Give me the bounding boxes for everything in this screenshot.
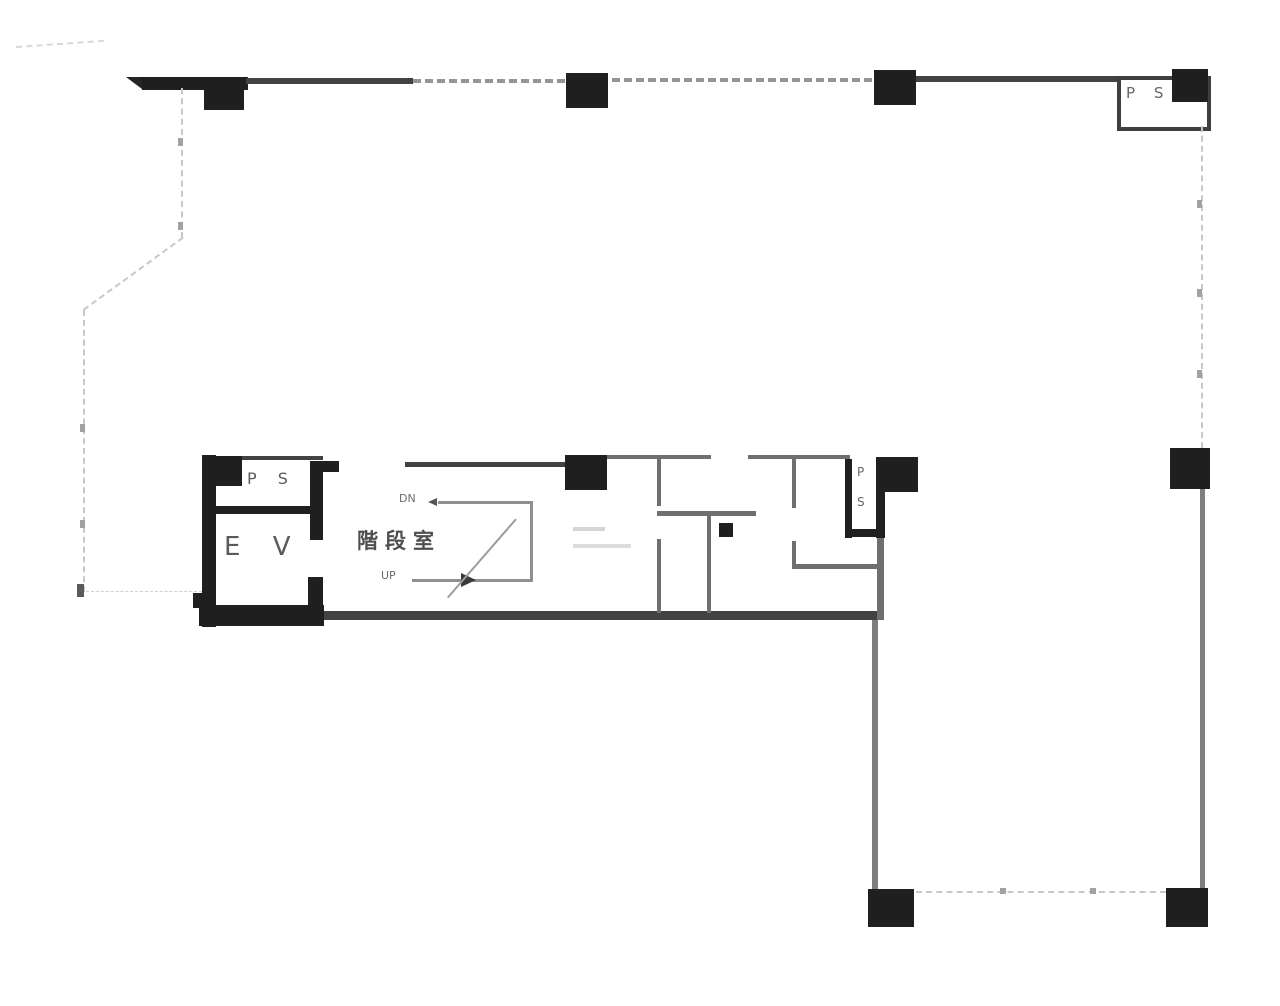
label-ps-small-s: S — [857, 496, 865, 508]
washroom-fixture-line-1 — [573, 527, 605, 531]
label-stair-down: DN — [399, 493, 416, 504]
label-stair-up: UP — [381, 570, 396, 581]
stair-flight-top-line — [438, 501, 533, 504]
stair-flight-right-line — [530, 501, 533, 582]
core-ps-ev-divider — [214, 506, 311, 514]
wing-bottom-tick-2 — [1090, 888, 1096, 894]
left-boundary-tick-4 — [80, 520, 85, 528]
washroom-right-wall — [877, 537, 884, 620]
column-bottom-left-of-wing — [868, 889, 914, 927]
stair-down-arrowhead-icon — [428, 498, 437, 506]
washroom-vwall-1-lower — [657, 539, 661, 613]
washroom-fixture-line-2 — [573, 544, 631, 548]
top-wall-dashed-1 — [413, 79, 565, 83]
wing-bottom-boundary-dashed — [916, 891, 1166, 893]
column-top-mid — [566, 73, 608, 108]
left-boundary-tick-dark — [77, 584, 84, 597]
column-service-right — [876, 457, 918, 492]
ps-core-right-stub — [322, 461, 339, 472]
right-boundary-tick-3 — [1197, 370, 1202, 378]
washroom-vwall-3-upper — [792, 459, 796, 508]
right-wall-solid — [1200, 489, 1205, 889]
right-boundary-tick-2 — [1197, 289, 1202, 297]
ps-small-left-wall — [845, 459, 852, 538]
label-elevator: E V — [224, 534, 302, 560]
left-connector-dashed — [86, 591, 202, 592]
column-stair-right — [565, 455, 607, 490]
label-ps-core: P S — [247, 471, 296, 487]
left-boundary-dashed-lower — [83, 310, 85, 592]
left-boundary-tick-3 — [80, 424, 85, 432]
washroom-hwall-2 — [792, 564, 880, 569]
column-top-left — [204, 82, 244, 110]
right-boundary-dashed — [1201, 126, 1203, 448]
ps-core-right-wall — [310, 461, 323, 540]
label-ps-small-p: P — [857, 466, 864, 478]
wing-left-wall — [872, 620, 878, 890]
core-bottom-wall — [324, 611, 880, 620]
ps-small-right-wall — [876, 490, 885, 538]
stair-break-line — [447, 519, 517, 599]
column-top-right-inner — [874, 70, 916, 105]
top-wall-taper — [126, 77, 142, 89]
core-bottom-wall-heavy — [199, 605, 324, 626]
wing-bottom-tick-1 — [1000, 888, 1006, 894]
left-boundary-diagonal — [83, 237, 184, 311]
top-wall-segment-1 — [246, 78, 413, 84]
left-boundary-tick-1 — [178, 138, 183, 146]
washroom-fixture-block — [719, 523, 733, 537]
column-core-top-left — [202, 456, 242, 486]
topleft-boundary-specks — [16, 40, 104, 48]
label-ps-top-right: P S — [1126, 86, 1170, 101]
left-boundary-dashed-upper — [181, 88, 183, 238]
core-bottom-notch — [193, 593, 202, 608]
washroom-vwall-2 — [707, 516, 711, 613]
column-top-right-corner — [1172, 69, 1208, 102]
washroom-vwall-1-upper — [657, 459, 661, 506]
right-boundary-tick-1 — [1197, 200, 1202, 208]
column-right-mid — [1170, 448, 1210, 489]
top-wall-dashed-2 — [612, 78, 872, 82]
floor-plan-canvas: P S P S E V 階段室 DN UP — [0, 0, 1280, 1006]
column-bottom-right — [1166, 888, 1208, 927]
stair-room-top-wall — [405, 462, 567, 467]
left-boundary-tick-2 — [178, 222, 183, 230]
washroom-top-wall-2 — [748, 455, 850, 459]
label-stair-room: 階段室 — [357, 531, 441, 552]
